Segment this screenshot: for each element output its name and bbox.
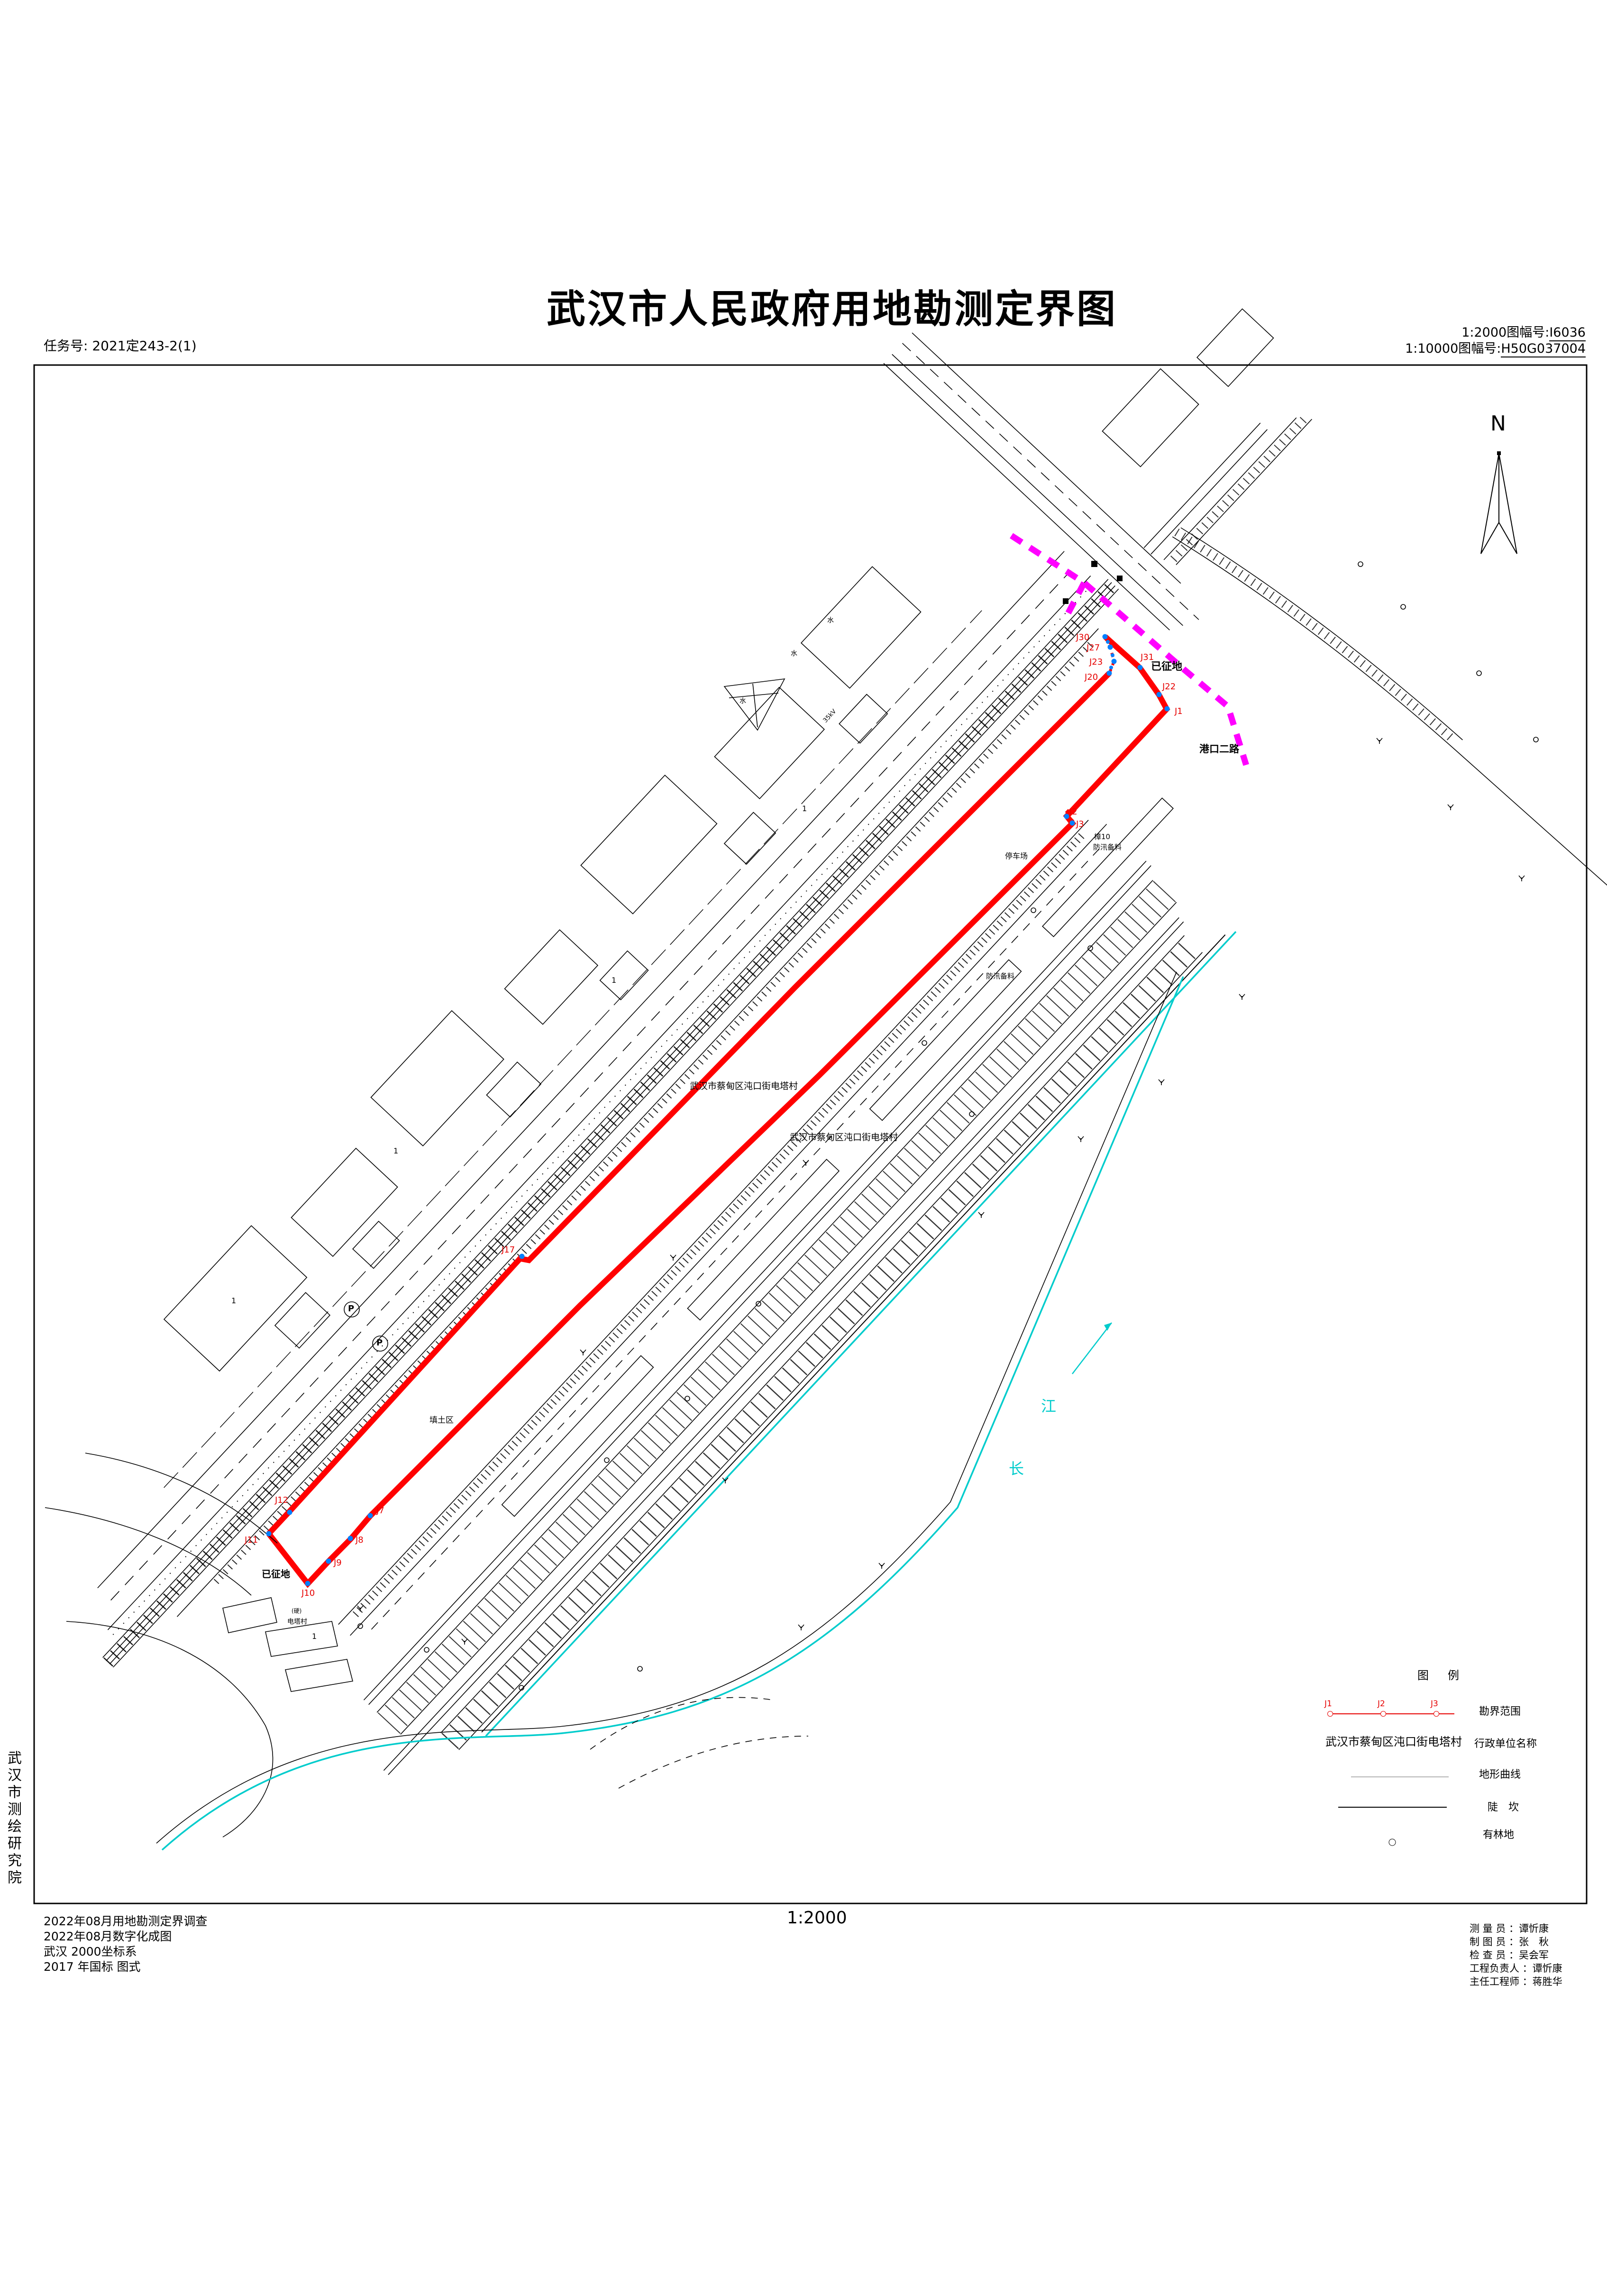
survey-map-sheet: 任务号: 2021定243-2(1) 武汉市人民政府用地勘测定界图 1:2000… bbox=[0, 0, 1607, 2296]
label-plot-no: 1 bbox=[802, 805, 807, 813]
legend-label-boundary: 勘界范围 bbox=[1479, 1707, 1521, 1717]
point-label-j23: J23 bbox=[1089, 658, 1103, 667]
sheet-number-2000-value: I6036 bbox=[1549, 325, 1586, 341]
river-flow-arrow bbox=[1072, 1323, 1112, 1374]
village-buildings bbox=[223, 1598, 353, 1692]
point-label-j27: J27 bbox=[1087, 644, 1100, 652]
levee-hatch-band-1 bbox=[389, 891, 1165, 1723]
page-title: 武汉市人民政府用地勘测定界图 bbox=[547, 290, 1117, 329]
label-river-jiang: 江 bbox=[1041, 1399, 1056, 1414]
point-label-j8: J8 bbox=[356, 1536, 364, 1545]
legend-label-terrain-curve: 地形曲线 bbox=[1479, 1770, 1521, 1780]
label-pond: 水 bbox=[740, 698, 746, 704]
label-plot-no: 1 bbox=[312, 1633, 317, 1640]
grass-icons bbox=[357, 738, 1525, 1645]
parking-p-icon: P bbox=[376, 1339, 383, 1347]
footer-note-2: 2022年08月数字化成图 bbox=[44, 1930, 172, 1942]
north-label: N bbox=[1490, 413, 1506, 434]
sheet-number-2000: 1:2000图幅号:I6036 bbox=[1233, 326, 1586, 339]
label-river-chang: 长 bbox=[1009, 1461, 1024, 1476]
label-requisitioned-bottom: 已征地 bbox=[262, 1569, 290, 1579]
legend-title: 图 例 bbox=[1417, 1670, 1463, 1681]
river-bank-cyan bbox=[162, 977, 1183, 1850]
legend-sample-admin-name: 武汉市蔡甸区沌口街电塔村 bbox=[1325, 1736, 1462, 1747]
footer-note-1: 2022年08月用地勘测定界调查 bbox=[44, 1915, 207, 1927]
label-village-1: 武汉市蔡甸区沌口街电塔村 bbox=[690, 1082, 798, 1091]
sheet-number-2000-label: 1:2000图幅号: bbox=[1461, 325, 1549, 340]
legend-label-admin-name: 行政单位名称 bbox=[1474, 1739, 1537, 1749]
legend-point-j3: J3 bbox=[1431, 1700, 1438, 1708]
point-label-j3: J3 bbox=[1076, 820, 1084, 829]
bank-hatch-row bbox=[216, 642, 1092, 1582]
label-village-2: 武汉市蔡甸区沌口街电塔村 bbox=[790, 1133, 898, 1142]
label-parking: 停车场 bbox=[1005, 852, 1028, 860]
point-label-j22: J22 bbox=[1162, 683, 1176, 691]
label-flood-material-1: 防汛备料 bbox=[1093, 844, 1122, 851]
point-label-j7: J7 bbox=[376, 1507, 384, 1515]
task-number: 任务号: 2021定243-2(1) bbox=[44, 339, 197, 353]
railway-ticks bbox=[108, 584, 1114, 1663]
point-label-j11: J11 bbox=[245, 1536, 258, 1545]
label-plot-no: 1 bbox=[231, 1297, 236, 1305]
map-scale: 1:2000 bbox=[787, 1910, 847, 1927]
sheet-number-10000-label: 1:10000图幅号: bbox=[1405, 341, 1501, 356]
institute-name: 武汉市测绘研究院 bbox=[6, 1750, 20, 1887]
point-label-j9: J9 bbox=[334, 1559, 342, 1567]
label-hard-surface: (硬) bbox=[292, 1608, 301, 1614]
point-label-j31: J31 bbox=[1141, 653, 1154, 662]
label-flood-material-2: 防汛备料 bbox=[986, 973, 1014, 980]
label-plot-no: 1 bbox=[612, 977, 616, 984]
sheet-number-10000-value: H50G037004 bbox=[1501, 341, 1586, 357]
legend-label-steep-bank: 陡 坎 bbox=[1488, 1802, 1519, 1813]
legend-point-j1: J1 bbox=[1324, 1700, 1332, 1708]
parking-p-icon: P bbox=[348, 1305, 354, 1313]
label-pond: 水 bbox=[827, 617, 834, 624]
credit-drafter: 制 图 员 ：张 秋 bbox=[1470, 1937, 1549, 1947]
point-label-j1: J1 bbox=[1175, 707, 1183, 716]
map-detail-linework bbox=[45, 561, 1538, 1850]
river-edge-line bbox=[486, 932, 1236, 1736]
point-label-j12: J12 bbox=[275, 1496, 288, 1505]
point-label-j10: J10 bbox=[301, 1589, 315, 1598]
footer-note-3: 武汉 2000坐标系 bbox=[44, 1946, 137, 1958]
credit-chief-engineer: 主任工程师 ：蒋胜华 bbox=[1470, 1977, 1562, 1987]
levee-hatch-band-2 bbox=[450, 944, 1194, 1741]
legend-point-j2: J2 bbox=[1378, 1700, 1385, 1708]
credit-surveyor: 测 量 员 ：谭忻康 bbox=[1470, 1924, 1549, 1934]
shed-buildings bbox=[501, 797, 1175, 1518]
north-arrow-icon bbox=[1481, 451, 1517, 554]
tree-circles bbox=[358, 562, 1538, 1690]
label-camphor: 樟10 bbox=[1094, 833, 1110, 841]
point-label-j17: J17 bbox=[502, 1246, 515, 1254]
credit-inspector: 检 查 员 ：吴会军 bbox=[1470, 1950, 1549, 1960]
label-dianta-village: 电塔村 bbox=[287, 1619, 307, 1625]
plot-outlines bbox=[161, 560, 956, 1400]
label-requisitioned-top: 已征地 bbox=[1151, 662, 1182, 672]
legend-samples bbox=[1328, 1711, 1455, 1846]
pond-symbol bbox=[724, 679, 785, 730]
label-plot-no: 1 bbox=[393, 1147, 398, 1155]
point-label-j30: J30 bbox=[1076, 633, 1089, 642]
label-pond: 水 bbox=[791, 650, 797, 657]
point-label-j20: J20 bbox=[1085, 673, 1098, 682]
footer-note-4: 2017 年国标 图式 bbox=[44, 1961, 141, 1973]
label-road-gangkou: 港口二路 bbox=[1199, 744, 1239, 754]
sheet-number-10000: 1:10000图幅号:H50G037004 bbox=[1233, 342, 1586, 355]
point-label-j2: J2 bbox=[1069, 808, 1077, 816]
legend-label-forest-land: 有林地 bbox=[1483, 1830, 1514, 1840]
label-fill-area: 填土区 bbox=[429, 1417, 454, 1425]
credit-project-lead: 工程负责人 ：谭忻康 bbox=[1470, 1964, 1562, 1974]
map-strip-linework bbox=[0, 156, 1607, 2051]
